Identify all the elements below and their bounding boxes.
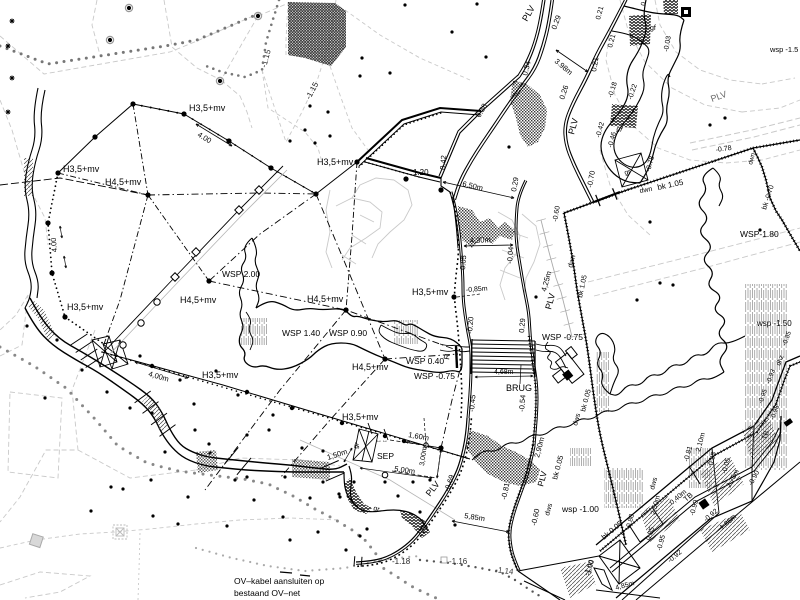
svg-text:4,68m: 4,68m <box>494 369 514 376</box>
svg-text:-1.18: -1.18 <box>392 557 411 566</box>
svg-text:WSP-1.80: WSP-1.80 <box>740 229 779 239</box>
svg-text:WSP -0.75: WSP -0.75 <box>414 371 455 381</box>
svg-text:H4,5+mv: H4,5+mv <box>307 294 344 304</box>
svg-text:WSP -0.75: WSP -0.75 <box>542 332 583 342</box>
svg-text:-0.45: -0.45 <box>467 394 477 412</box>
svg-text:H4,5+mv: H4,5+mv <box>180 295 217 305</box>
svg-text:0.05: 0.05 <box>458 255 468 270</box>
svg-text:wsp -1.50: wsp -1.50 <box>756 319 792 328</box>
svg-text:H3,5+mv: H3,5+mv <box>317 157 354 167</box>
svg-text:wsp -1.00: wsp -1.00 <box>561 504 599 514</box>
svg-text:WSP 1.40: WSP 1.40 <box>282 328 320 338</box>
svg-text:0.29: 0.29 <box>517 318 527 333</box>
svg-text:↔↔: ↔↔ <box>376 438 388 444</box>
svg-text:H3,5+mv: H3,5+mv <box>412 287 449 297</box>
svg-text:bestaand OV–net: bestaand OV–net <box>234 588 301 598</box>
svg-text:OV–kabel aansluiten op: OV–kabel aansluiten op <box>234 576 325 586</box>
svg-text:gf: gf <box>650 25 656 32</box>
svg-text:-0.20: -0.20 <box>465 316 475 334</box>
svg-text:H4,5+mv: H4,5+mv <box>352 362 389 372</box>
svg-text:SEP: SEP <box>377 451 394 461</box>
svg-text:-0.04: -0.04 <box>505 246 515 264</box>
svg-text:H3,5+mv: H3,5+mv <box>67 302 104 312</box>
svg-text:BRUG: BRUG <box>506 383 532 393</box>
svg-text:WSP 0.40: WSP 0.40 <box>406 356 444 366</box>
svg-text:H3,5+mv: H3,5+mv <box>342 412 379 422</box>
svg-text:4.00: 4.00 <box>49 237 59 252</box>
svg-text:WSP 2.00: WSP 2.00 <box>222 269 260 279</box>
svg-text:-0.54: -0.54 <box>517 394 527 412</box>
svg-text:WSP 0.90: WSP 0.90 <box>329 328 367 338</box>
svg-text:H3,5+mv: H3,5+mv <box>189 103 226 113</box>
svg-text:0.42: 0.42 <box>438 155 448 170</box>
svg-text:H3,5+mv: H3,5+mv <box>202 370 239 380</box>
svg-text:H4,5+mv: H4,5+mv <box>105 177 142 187</box>
svg-text:H3,5+mv: H3,5+mv <box>63 164 100 174</box>
svg-text:-1.16: -1.16 <box>449 557 468 566</box>
svg-text:wsp -1.5: wsp -1.5 <box>769 45 798 54</box>
svg-text:4,30m: 4,30m <box>470 235 491 245</box>
